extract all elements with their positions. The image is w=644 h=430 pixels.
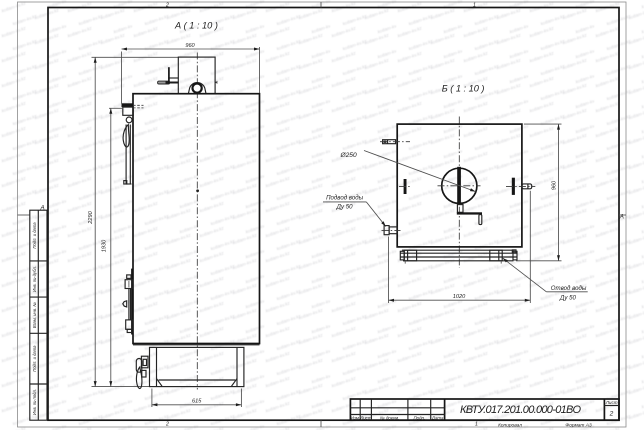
svg-text:1: 1 (473, 2, 476, 8)
svg-text:А ( 1 : 10 ): А ( 1 : 10 ) (174, 21, 218, 31)
svg-text:Копировал: Копировал (498, 422, 522, 428)
svg-text:А: А (619, 214, 624, 221)
svg-text:2: 2 (609, 411, 614, 418)
svg-text:КВТУ.017.201.00.000-01ВО: КВТУ.017.201.00.000-01ВО (460, 404, 581, 416)
svg-text:960: 960 (185, 43, 195, 49)
svg-text:Лист: Лист (605, 400, 618, 405)
svg-text:615: 615 (192, 399, 202, 405)
svg-text:1: 1 (475, 422, 478, 428)
svg-text:Изм.: Изм. (351, 415, 360, 420)
svg-text:Подп. и дата: Подп. и дата (32, 222, 37, 249)
svg-text:2: 2 (165, 422, 169, 428)
svg-text:Дата: Дата (431, 415, 444, 420)
svg-text:Б ( 1 : 10 ): Б ( 1 : 10 ) (442, 84, 485, 94)
svg-text:Инв. № подл.: Инв. № подл. (32, 389, 37, 415)
svg-text:Взам. инв. №: Взам. инв. № (32, 302, 37, 328)
svg-text:Инв. № дубл.: Инв. № дубл. (32, 266, 37, 292)
svg-text:Подвод воды: Подвод воды (326, 194, 363, 201)
svg-text:1020: 1020 (453, 294, 466, 300)
svg-text:2290: 2290 (88, 210, 94, 224)
svg-text:Ду 50: Ду 50 (559, 295, 576, 302)
svg-text:Формат А3: Формат А3 (565, 422, 592, 428)
svg-text:Подп.: Подп. (413, 415, 425, 420)
svg-text:960: 960 (552, 180, 558, 190)
svg-text:1930: 1930 (101, 239, 107, 252)
svg-text:Ø250: Ø250 (340, 152, 357, 159)
svg-text:Лист: Лист (359, 415, 372, 420)
svg-text:Отвод воды: Отвод воды (551, 285, 587, 292)
svg-text:№ докум.: № докум. (380, 415, 399, 420)
svg-text:Ду 50: Ду 50 (336, 203, 353, 210)
svg-text:Подп. и дата: Подп. и дата (32, 345, 37, 372)
svg-text:2: 2 (165, 2, 169, 8)
